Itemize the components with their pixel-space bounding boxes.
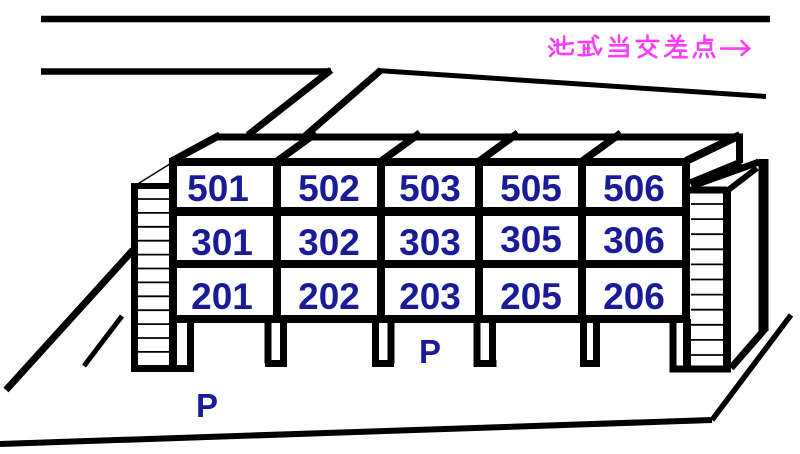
svg-text:506: 506 bbox=[603, 168, 665, 209]
svg-text:P: P bbox=[196, 387, 218, 424]
svg-text:202: 202 bbox=[298, 276, 360, 317]
svg-text:206: 206 bbox=[603, 276, 665, 317]
svg-text:306: 306 bbox=[603, 220, 665, 261]
svg-text:301: 301 bbox=[191, 222, 253, 263]
svg-text:503: 503 bbox=[399, 168, 461, 209]
svg-text:501: 501 bbox=[187, 168, 249, 209]
svg-text:P: P bbox=[419, 333, 441, 370]
svg-text:205: 205 bbox=[500, 276, 562, 317]
svg-text:302: 302 bbox=[298, 222, 360, 263]
svg-text:201: 201 bbox=[191, 276, 253, 317]
svg-text:203: 203 bbox=[399, 276, 461, 317]
svg-text:305: 305 bbox=[500, 219, 562, 260]
svg-text:502: 502 bbox=[298, 168, 360, 209]
svg-text:303: 303 bbox=[399, 222, 461, 263]
svg-text:505: 505 bbox=[500, 168, 562, 209]
